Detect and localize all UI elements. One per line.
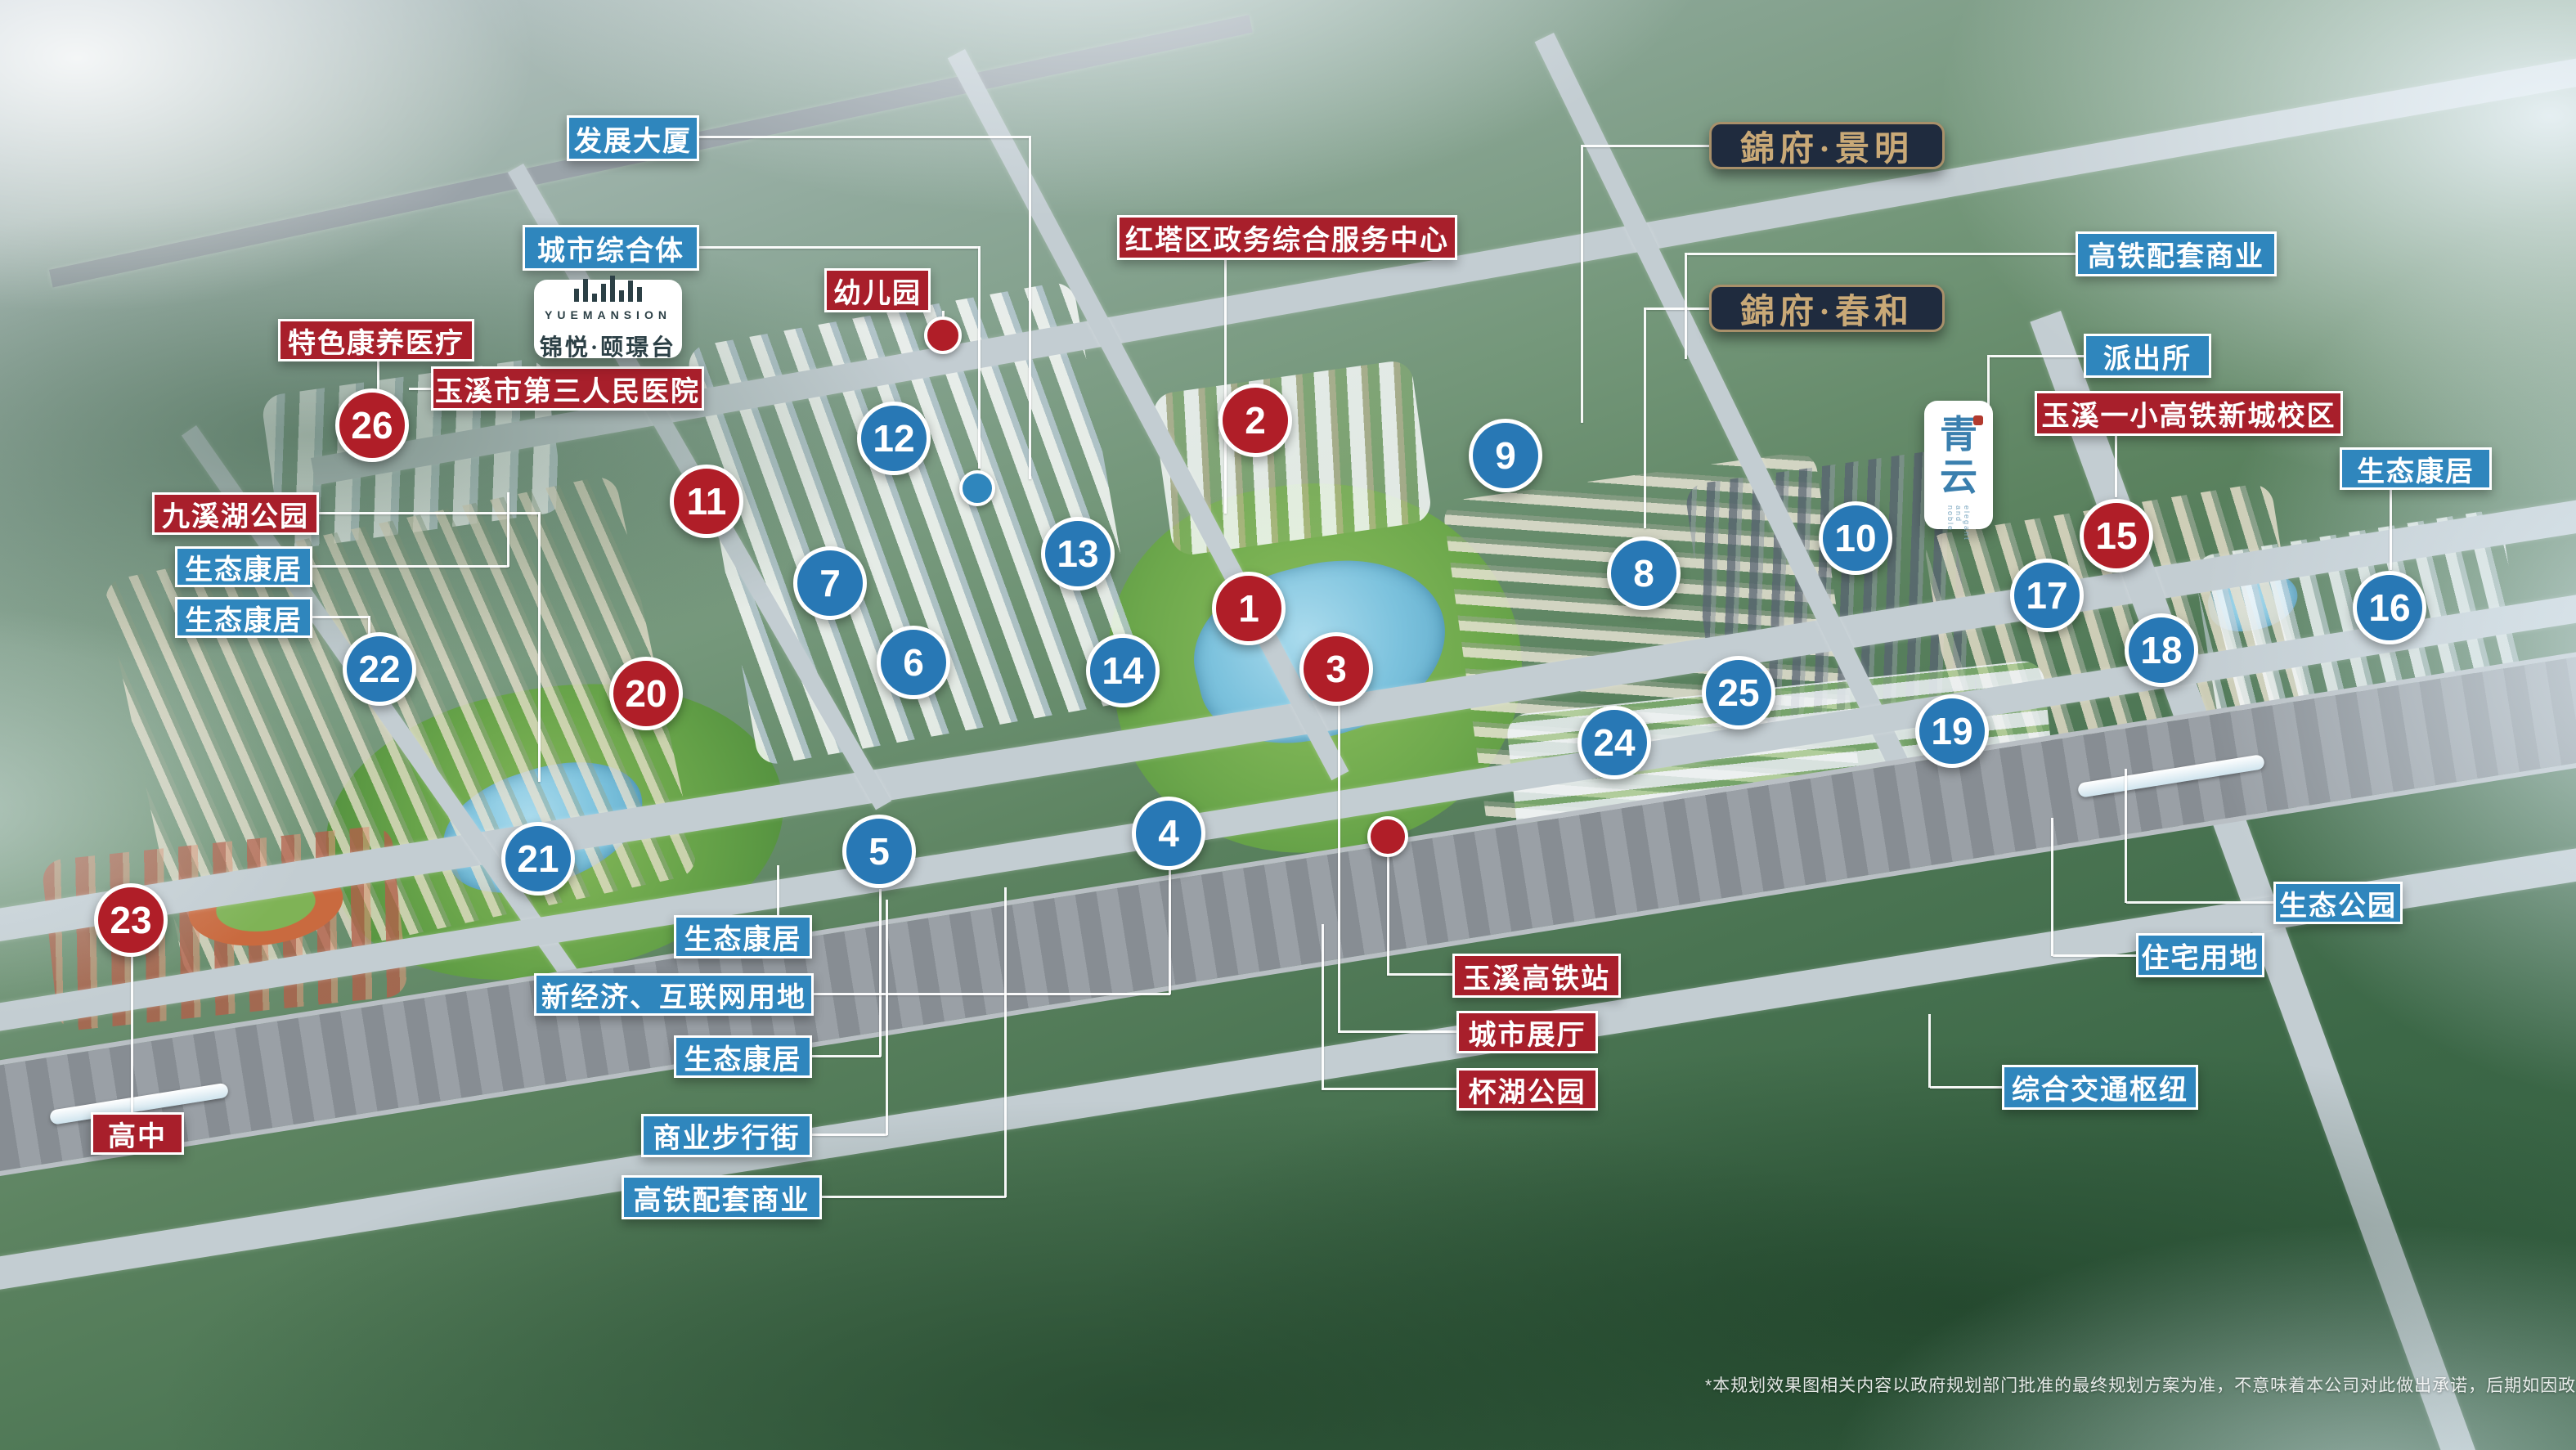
label-shengtai-kangju-b1: 生态康居 <box>674 915 812 958</box>
marker-15: 15 <box>2080 499 2153 572</box>
label-gaotie-shangye-top: 高铁配套商业 <box>2076 231 2277 276</box>
leader-line <box>1224 260 1227 514</box>
leader-line <box>2125 769 2127 903</box>
leader-line <box>777 865 779 915</box>
label-shangye-buxingjie: 商业步行街 <box>641 1114 812 1157</box>
yuemansion-cn-name: 锦悦·颐璟台 <box>540 330 676 362</box>
marker-23: 23 <box>94 883 168 957</box>
marker-5: 5 <box>842 815 916 888</box>
yuemansion-logo: YUEMANSION 锦悦·颐璟台 <box>534 280 682 358</box>
leader-line <box>1322 1088 1456 1090</box>
label-jiuxihu-gongyuan: 九溪湖公园 <box>152 492 319 535</box>
label-jinfu-jingming: 錦府·景明 <box>1709 122 1945 169</box>
leader-line <box>814 993 1170 995</box>
leader-line <box>1685 253 1687 359</box>
leader-line <box>812 1055 881 1057</box>
label-hongtaqu-zhengwu: 红塔区政务综合服务中心 <box>1117 215 1457 260</box>
marker-13: 13 <box>1041 517 1115 590</box>
marker-9: 9 <box>1469 419 1542 492</box>
leader-line <box>1645 308 1711 310</box>
leader-line <box>2051 818 2053 956</box>
marker-8: 8 <box>1607 536 1681 610</box>
leader-line <box>1029 136 1031 479</box>
leader-line <box>1989 355 2085 357</box>
leader-line <box>1930 1086 2004 1089</box>
station-site-dot <box>1367 816 1408 857</box>
label-xinjingji-hulianwang: 新经济、互联网用地 <box>534 973 814 1016</box>
label-beihu-gongyuan: 杯湖公园 <box>1456 1068 1598 1111</box>
label-shengtai-kangju-l1: 生态康居 <box>175 546 312 587</box>
leader-line <box>699 246 980 249</box>
yuemansion-bars-icon <box>574 276 642 302</box>
marker-7: 7 <box>793 546 867 620</box>
label-yuxi-yixiao-xiaoqu: 玉溪一小高铁新城校区 <box>2035 391 2343 436</box>
leader-line <box>812 1134 887 1136</box>
label-gaozhong: 高中 <box>91 1112 184 1155</box>
qingyun-logo: 青 云 elegant and noble <box>1924 401 1993 529</box>
masterplan-map: 发展大厦城市综合体特色康养医疗玉溪市第三人民医院九溪湖公园生态康居生态康居幼儿园… <box>0 0 2576 1450</box>
marker-2: 2 <box>1218 384 1292 457</box>
leader-line <box>1644 308 1646 528</box>
marker-20: 20 <box>609 657 683 730</box>
label-shengtai-kangju-l2: 生态康居 <box>175 597 312 638</box>
leader-line <box>1686 253 2077 255</box>
leader-line <box>312 565 509 568</box>
leader-line <box>2126 901 2275 904</box>
label-chengshi-zongheti: 城市综合体 <box>523 225 699 271</box>
marker-14: 14 <box>1086 634 1160 707</box>
marker-16: 16 <box>2353 571 2426 644</box>
leader-line <box>1322 924 1324 1089</box>
leader-line <box>507 492 509 567</box>
leader-line <box>2053 954 2138 957</box>
leader-line <box>822 1196 1006 1198</box>
label-shengtai-kangju-b2: 生态康居 <box>674 1035 812 1078</box>
label-zhuzhai-yongdi: 住宅用地 <box>2136 933 2264 977</box>
leader-line <box>879 889 882 1057</box>
label-jinfu-chunhe: 錦府·春和 <box>1709 285 1945 332</box>
qingyun-char-1: 青 <box>1940 414 1977 456</box>
qingyun-seal-icon <box>1973 415 1983 425</box>
leader-line <box>1582 145 1711 147</box>
marker-4: 4 <box>1132 797 1205 870</box>
leader-line <box>978 246 981 469</box>
leader-line <box>538 512 541 782</box>
marker-18: 18 <box>2125 613 2198 687</box>
leader-line <box>377 361 379 391</box>
marker-21: 21 <box>501 822 575 896</box>
marker-24: 24 <box>1577 706 1651 779</box>
leader-line <box>1387 857 1389 975</box>
leader-line <box>1928 1014 1931 1088</box>
marker-11: 11 <box>670 465 743 538</box>
leader-line <box>2115 436 2117 497</box>
marker-1: 1 <box>1212 572 1286 645</box>
label-chengshi-zhanting: 城市展厅 <box>1456 1011 1598 1053</box>
leader-line <box>409 388 433 390</box>
label-yuxi-gaotiezhan: 玉溪高铁站 <box>1452 954 1621 998</box>
label-zonghe-jiaotong-shuniu: 综合交通枢纽 <box>2002 1065 2198 1110</box>
leader-line <box>1004 887 1007 1197</box>
label-shengtai-kangju-r: 生态康居 <box>2340 447 2492 490</box>
label-paichusuo: 派出所 <box>2084 334 2211 378</box>
label-gaotie-shangye-bottom: 高铁配套商业 <box>622 1175 822 1219</box>
leader-line <box>886 900 888 1135</box>
marker-6: 6 <box>877 626 950 699</box>
marker-26: 26 <box>335 388 409 462</box>
leader-line <box>1338 1030 1456 1033</box>
qingyun-subtext: elegant and noble <box>1946 505 1971 541</box>
leader-line <box>2390 490 2392 570</box>
label-shengtai-gongyuan: 生态公园 <box>2273 882 2403 924</box>
kindergarten-site-dot <box>924 316 962 354</box>
leader-line <box>698 136 1030 138</box>
marker-25: 25 <box>1702 656 1775 729</box>
marker-19: 19 <box>1915 694 1989 768</box>
leader-line <box>1581 145 1583 423</box>
yuemansion-latin-name: YUEMANSION <box>545 308 671 321</box>
leader-line <box>131 956 133 1112</box>
marker-12: 12 <box>857 402 931 475</box>
marker-10: 10 <box>1819 501 1892 575</box>
leader-line <box>1338 705 1340 1032</box>
leader-line <box>1169 870 1171 994</box>
qingyun-char-2: 云 <box>1940 456 1977 499</box>
project-site-dot <box>959 470 995 506</box>
marker-3: 3 <box>1299 632 1373 706</box>
label-disan-renmin-yiyuan: 玉溪市第三人民医院 <box>431 366 704 411</box>
label-fazhan-dasha: 发展大厦 <box>567 115 699 161</box>
label-youeryuan: 幼儿园 <box>824 268 931 312</box>
leader-line <box>312 616 370 618</box>
leader-line <box>1387 973 1454 976</box>
marker-22: 22 <box>343 632 416 706</box>
marker-17: 17 <box>2010 559 2084 632</box>
disclaimer-text: *本规划效果图相关内容以政府规划部门批准的最终规划方案为准，不意味着本公司对此做… <box>1705 1372 2576 1397</box>
label-tese-kangyang-yiliao: 特色康养医疗 <box>278 319 474 361</box>
